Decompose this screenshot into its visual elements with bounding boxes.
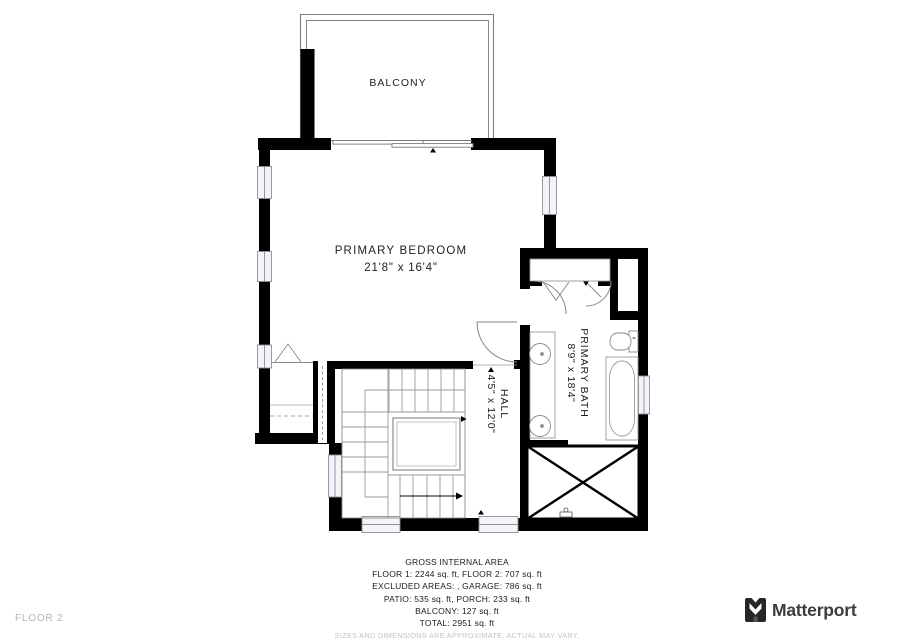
closet: [270, 344, 327, 443]
hall-dimensions: 4'5" x 12'0": [485, 375, 497, 434]
sink-icon: [530, 344, 551, 365]
sink-icon: [530, 416, 551, 437]
floor-plan-canvas: BALCONY PRIMARY BEDROOM 21'8" x 16'4" PR…: [0, 0, 905, 640]
area-summary: GROSS INTERNAL AREA FLOOR 1: 2244 sq. ft…: [292, 556, 622, 640]
bedroom-label: PRIMARY BEDROOM: [335, 245, 468, 257]
stair-void: [393, 418, 460, 470]
bedroom-dimensions: 21'8" x 16'4": [364, 262, 437, 274]
void-x-area: [527, 446, 639, 519]
toilet-icon: [610, 331, 638, 352]
bath-wardrobe: [530, 259, 638, 311]
window: [362, 517, 400, 533]
vanity: [530, 332, 556, 438]
summary-line: PATIO: 535 sq. ft, PORCH: 233 sq. ft: [292, 593, 622, 605]
window: [258, 167, 272, 199]
window: [479, 517, 518, 533]
summary-title: GROSS INTERNAL AREA: [292, 556, 622, 568]
window: [543, 177, 557, 215]
floorplan-page: BALCONY PRIMARY BEDROOM 21'8" x 16'4" PR…: [0, 0, 905, 640]
window: [258, 252, 272, 282]
summary-disclaimer: SIZES AND DIMENSIONS ARE APPROXIMATE, AC…: [292, 630, 622, 640]
summary-line: FLOOR 1: 2244 sq. ft, FLOOR 2: 707 sq. f…: [292, 568, 622, 580]
summary-line: TOTAL: 2951 sq. ft: [292, 617, 622, 629]
matterport-wordmark: Matterport: [772, 600, 857, 621]
window: [329, 455, 342, 497]
balcony-label: BALCONY: [369, 77, 426, 89]
window: [639, 376, 650, 414]
bedroom-door-arc: [473, 322, 517, 372]
summary-line: EXCLUDED AREAS: , GARAGE: 786 sq. ft: [292, 580, 622, 592]
summary-line: BALCONY: 127 sq. ft: [292, 605, 622, 617]
bath-dimensions: 8'9" x 18'4": [565, 344, 577, 403]
bath-label: PRIMARY BATH: [578, 328, 590, 418]
sliding-door: [331, 141, 473, 153]
matterport-logo: Matterport: [744, 597, 900, 625]
floor-label: FLOOR 2: [15, 613, 63, 624]
bathtub-icon: [606, 357, 638, 440]
hall-label: HALL: [498, 389, 510, 419]
matterport-icon: [744, 597, 768, 623]
window: [258, 345, 272, 368]
